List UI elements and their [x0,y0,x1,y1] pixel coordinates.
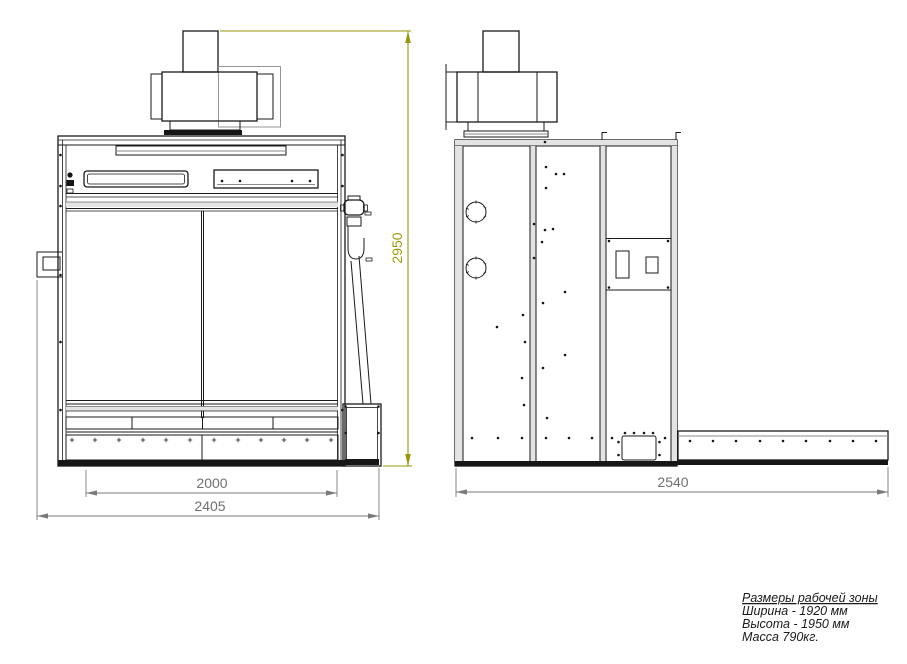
work-zone-notes: Размеры рабочей зоны Ширина - 1920 мм Вы… [742,591,878,644]
notes-title: Размеры рабочей зоны [742,591,878,605]
overall-width-label: 2405 [194,498,225,514]
door-latch-hardware [67,172,75,193]
cabinet-side [455,133,681,467]
side-view [446,31,888,466]
header-recess [116,146,286,155]
notes-mass: Масса 790кг. [742,630,819,644]
electrical-cutout-large [616,251,629,278]
notes-width: Ширина - 1920 мм [742,604,848,618]
technical-drawing: 2000 2405 2950 [0,0,907,664]
base-panel [66,435,338,460]
porthole-lower [466,257,486,280]
drawing-sheet: 2000 2405 2950 [0,0,907,664]
bottom-rivet-row [471,437,667,440]
exhaust-duct-front [183,31,218,72]
notes-height: Высота - 1950 мм [742,617,850,631]
overall-height-label: 2950 [389,232,405,263]
exhaust-duct-side [483,31,519,72]
rear-column [606,239,671,291]
front-view [37,31,381,466]
porthole-upper [466,201,486,224]
riveted-panel [214,170,318,188]
access-hatch [617,432,661,465]
fan-housing-front [151,72,273,135]
dimension-overall-depth: 2540 [456,467,888,497]
base-rail [58,460,345,466]
fan-shroud-outline [219,67,281,128]
cabinet-front [58,136,345,466]
skirt-segments [66,417,338,432]
light-panel [84,171,188,187]
overall-depth-label: 2540 [657,474,688,490]
dimension-opening-width: 2000 [86,470,337,497]
loading-platform [677,431,888,465]
opening-width-label: 2000 [196,475,227,491]
media-collection-box [343,404,381,466]
sliding-doors [202,211,204,418]
fan-housing-side [446,64,557,137]
upper-door-rails [66,194,338,212]
lifting-hook-right [676,133,681,141]
electrical-cutout-small [646,257,658,273]
lifting-hook-left [602,133,607,141]
base-rail-side [455,461,677,466]
